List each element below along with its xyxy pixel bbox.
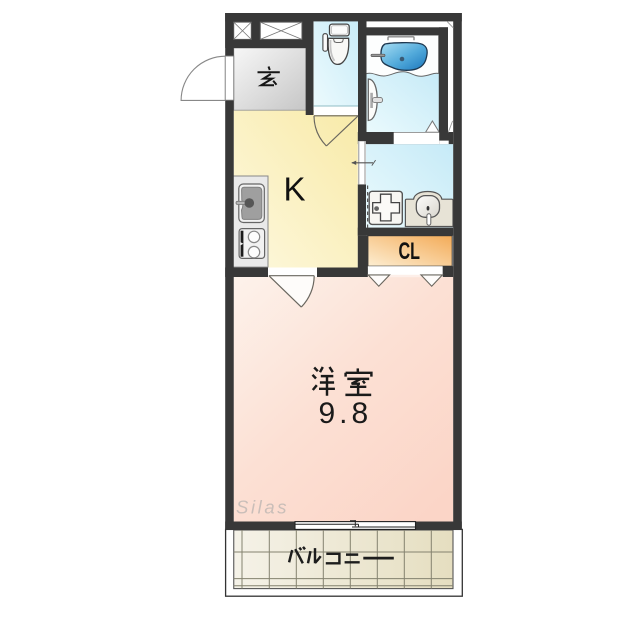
svg-text:Silas: Silas (236, 497, 289, 518)
svg-text:CL: CL (399, 238, 421, 265)
svg-text:K: K (284, 171, 306, 208)
svg-text:9.8: 9.8 (319, 397, 373, 430)
